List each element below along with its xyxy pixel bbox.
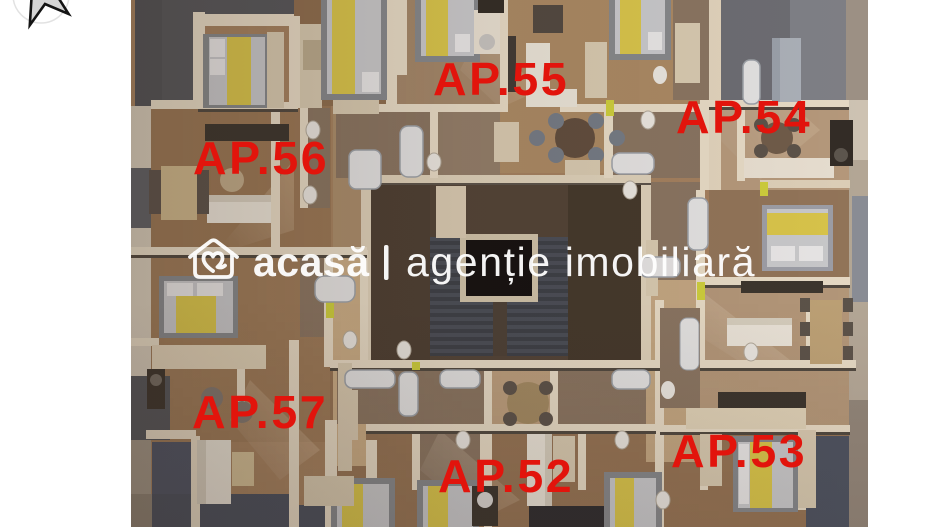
svg-text:AP.56: AP.56 [193,132,329,184]
svg-text:acasă: acasă [253,239,370,285]
svg-text:AP.54: AP.54 [676,91,812,143]
svg-text:AP.55: AP.55 [433,53,569,105]
svg-text:AP.52: AP.52 [438,450,574,502]
svg-text:AP.53: AP.53 [671,425,807,477]
svg-text:AP.57: AP.57 [192,386,328,438]
svg-text:agenție imobiliară: agenție imobiliară [406,239,756,285]
